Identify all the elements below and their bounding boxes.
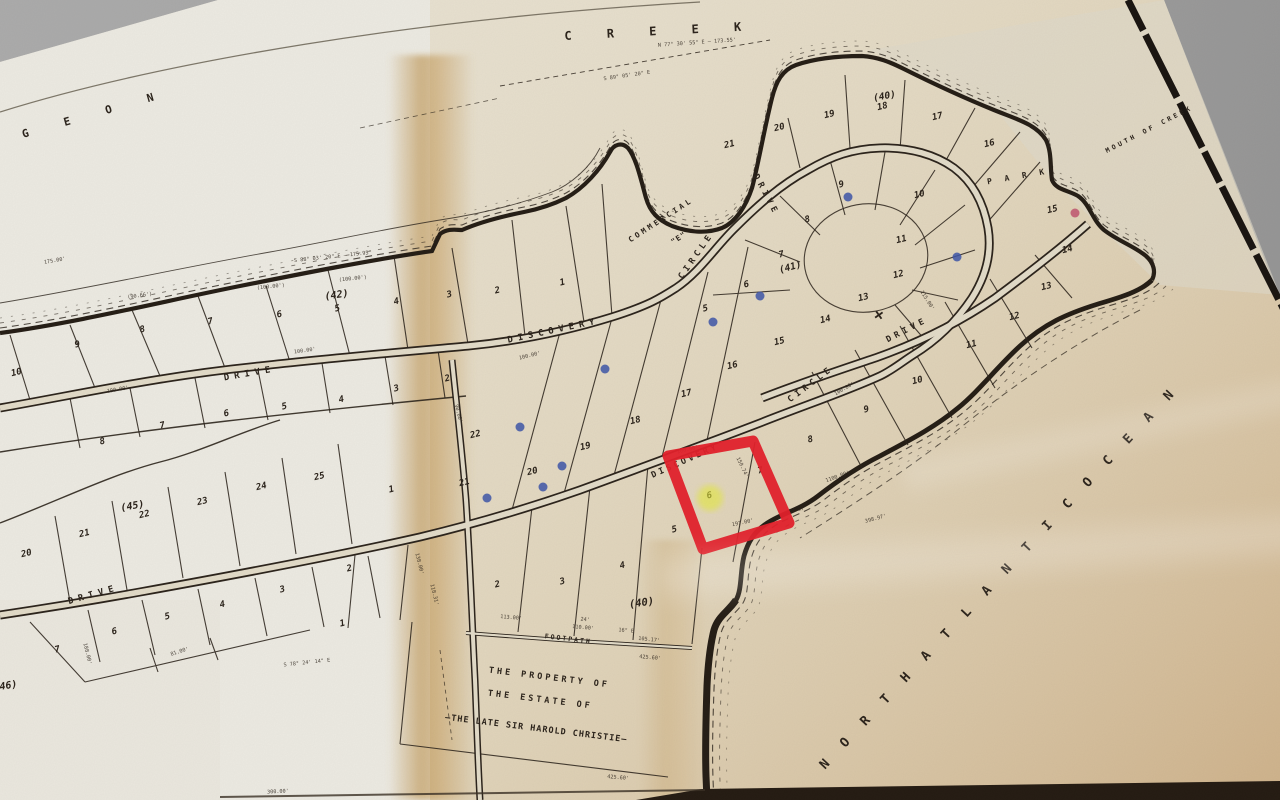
photo-of-plat-map: 197.00'150.74'100.00'100.00'100.00'100.0… xyxy=(0,0,1280,800)
paper-texture-overlay xyxy=(0,0,1280,800)
plat-map-canvas: 197.00'150.74'100.00'100.00'100.00'100.0… xyxy=(0,0,1280,800)
